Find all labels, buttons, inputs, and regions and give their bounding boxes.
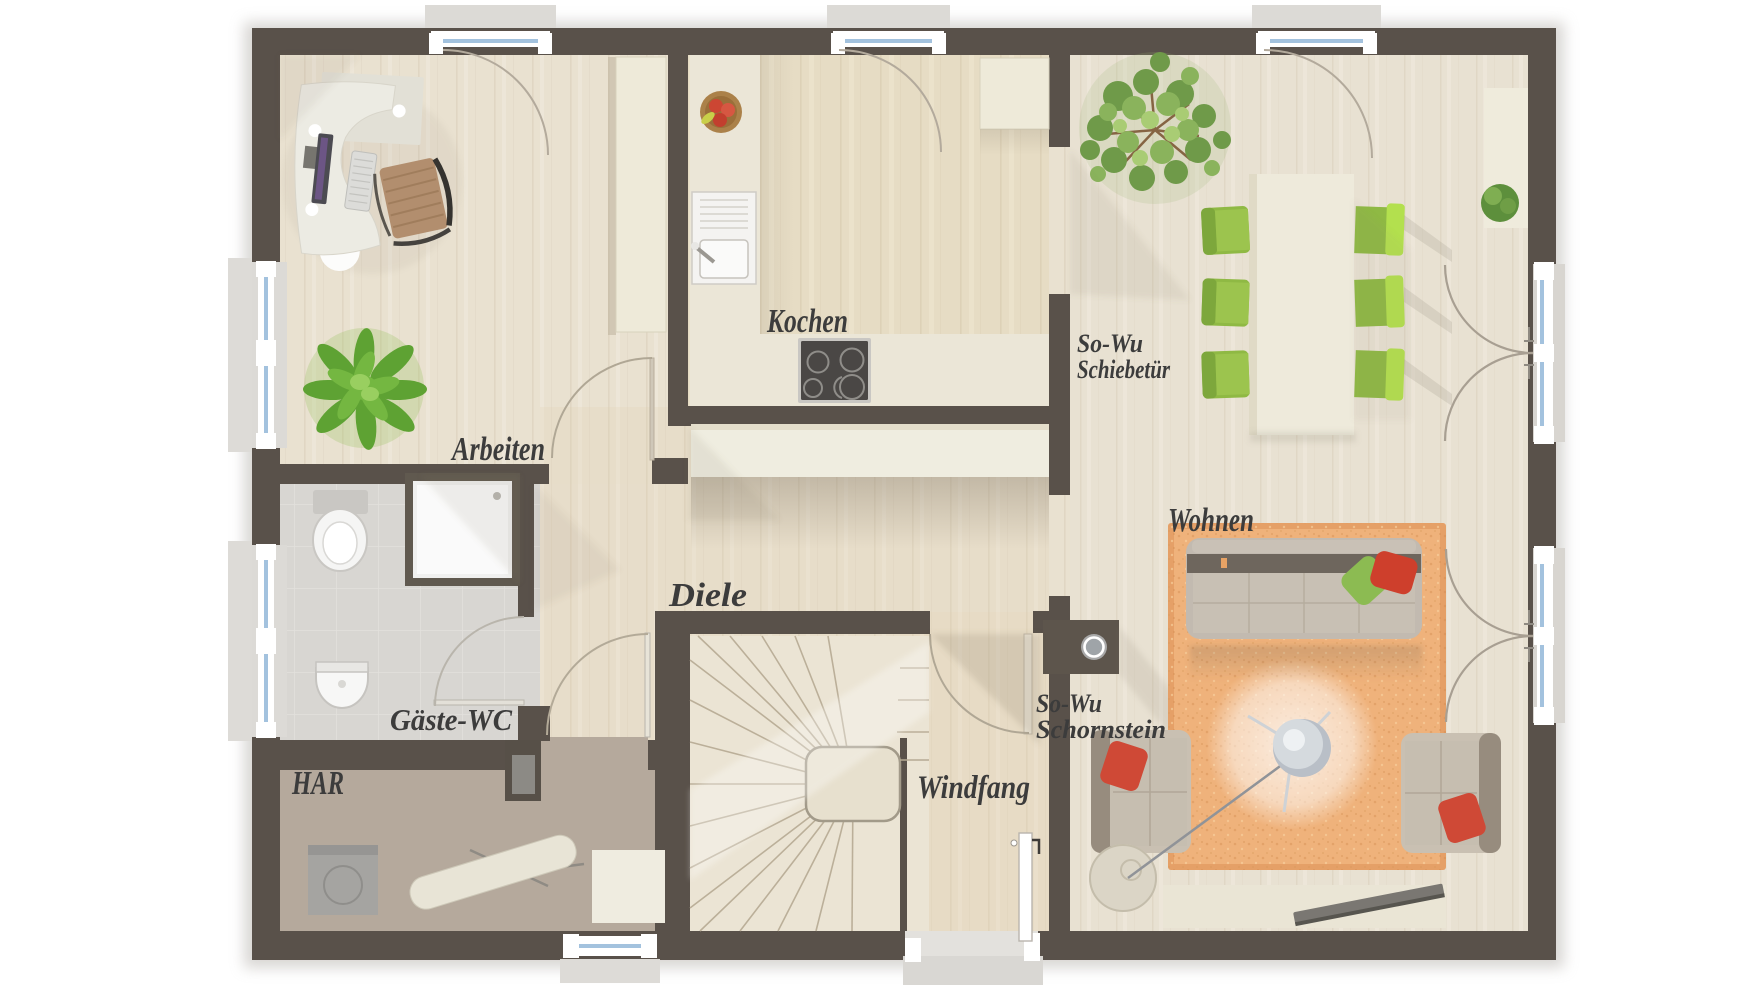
svg-text:Wohnen: Wohnen (1168, 502, 1254, 539)
svg-text:So-Wu: So-Wu (1077, 329, 1143, 358)
svg-text:Kochen: Kochen (766, 303, 848, 340)
svg-text:So-Wu: So-Wu (1036, 689, 1102, 718)
svg-text:Arbeiten: Arbeiten (450, 431, 545, 468)
svg-text:Gäste-WC: Gäste-WC (390, 702, 512, 737)
svg-text:Diele: Diele (668, 577, 747, 614)
svg-text:Schiebetür: Schiebetür (1077, 355, 1171, 384)
svg-text:Schornstein: Schornstein (1036, 715, 1166, 744)
svg-text:Windfang: Windfang (917, 770, 1030, 806)
svg-text:HAR: HAR (291, 765, 344, 802)
